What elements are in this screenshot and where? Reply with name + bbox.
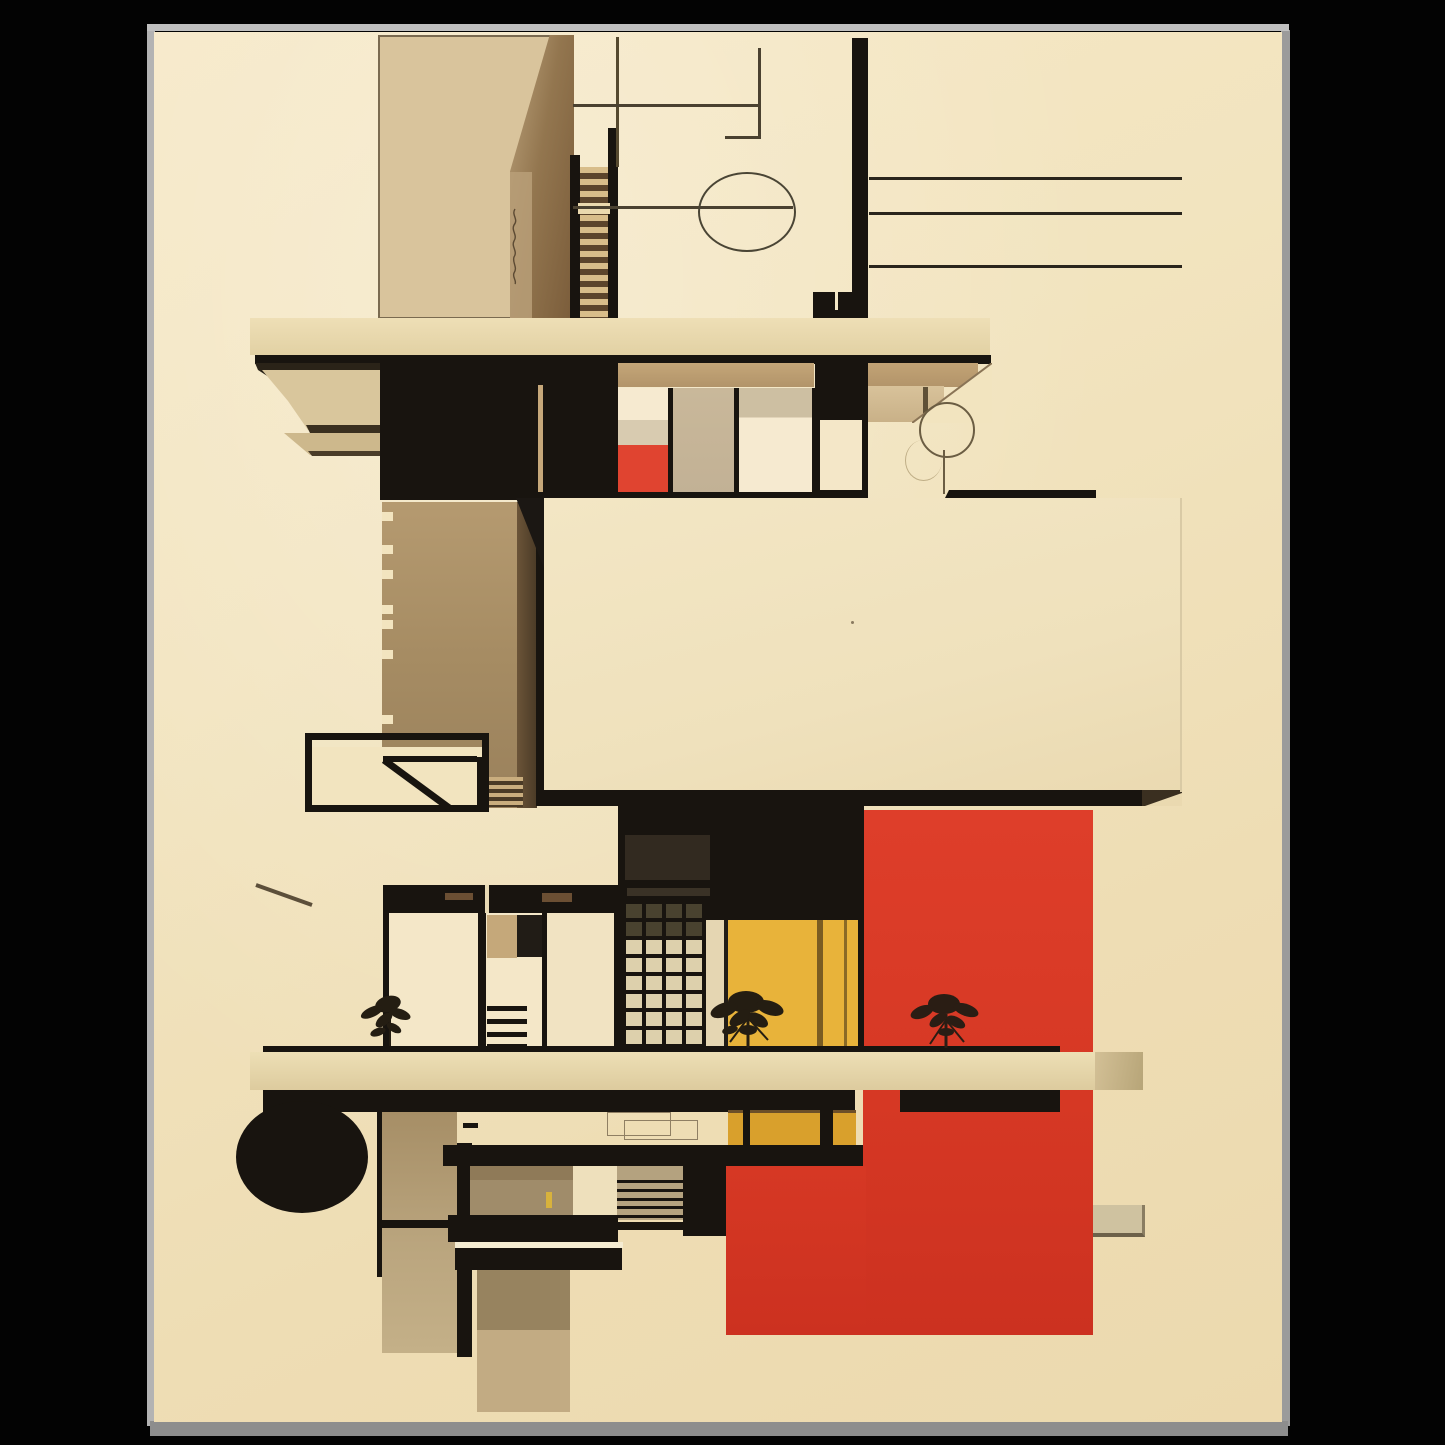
speck [851,621,854,624]
grid-cell [626,958,642,972]
window-pane-3 [739,388,812,494]
ellipse-ornament [698,172,796,252]
window-filler [812,388,816,494]
grid-cell [686,904,702,918]
poster-edge-top [147,24,1289,31]
grid-cell [646,904,662,918]
cantilever-slit [538,385,543,492]
circle-stem [943,450,945,494]
rule-line-2 [869,212,1182,215]
small-dash-2 [463,1123,478,1128]
corner-line-horizontal [725,136,761,139]
house-corner-shadow [516,498,544,568]
tower-notch [382,512,393,521]
plant-icon [902,988,988,1050]
red-panel-extension [726,1166,866,1335]
tower-notch [382,650,393,659]
grid-cell [626,1030,642,1044]
wall-mullion-right [614,885,626,1052]
louver-window-top [617,1166,683,1178]
header-dash-2 [542,893,572,902]
grid-cell [686,958,702,972]
house-body [536,498,1182,806]
poster-artwork [154,32,1282,1422]
lower-band-upper [443,1145,863,1166]
plant-icon [350,990,412,1048]
grid-cell [646,1012,662,1026]
window-header-band [618,363,814,387]
grid-cell [646,940,662,954]
room-cream-pane [573,1166,617,1217]
tower-notch [382,570,393,579]
big-black-ellipse [236,1101,368,1213]
grid-cell [666,940,682,954]
grid-cell [666,976,682,990]
grid-cell [646,1030,662,1044]
right-tab-block [1093,1205,1145,1237]
grid-cell [626,994,642,1008]
pane2-louver [487,1019,527,1024]
faint-arc [905,440,942,481]
pane2-louver [487,1032,527,1037]
upper-slab [250,318,990,355]
window-pane-2 [673,388,734,494]
grid-cell [666,904,682,918]
room-taupe-pane [470,1180,573,1217]
yellow-lower-mullion-1 [743,1110,750,1147]
grid-cell [646,994,662,1008]
stair-treads [580,167,608,318]
signature-squiggle [509,207,521,285]
bar-window-pane [820,420,862,490]
stair-rail-left [570,155,580,318]
thick-vertical-bar [852,38,868,312]
room-door-light [546,1192,552,1208]
louver-line [617,1189,683,1192]
grid-cell [646,976,662,990]
grid-cell [626,904,642,918]
grid-cell [626,922,642,936]
grid-cell [666,994,682,1008]
louver-window [617,1178,683,1220]
cantilever-block [380,358,618,500]
mid-dark-strip [627,888,710,896]
rule-line-1 [869,177,1182,180]
vertical-line-ornament [616,37,619,167]
walkway-slab [250,1052,1143,1090]
grid-cell [646,958,662,972]
grid-cell [646,922,662,936]
red-window-square [618,445,668,494]
lower-band-ext-right [618,1222,726,1230]
grid-cell [626,976,642,990]
header-dash-1 [445,893,473,900]
grid-window [622,900,706,1048]
underslab-band-right [900,1090,1060,1112]
wall-mullion-2 [478,913,486,1046]
mid-dark-panel [625,835,710,880]
tower-notch [382,715,393,724]
lower-room-taupe [477,1270,570,1330]
lower-band-ext-left [378,1220,448,1228]
grid-cell [666,1012,682,1026]
sketch-rect-2 [624,1120,698,1140]
left-chevron-wedge [250,357,382,467]
wall-pane-3 [547,913,614,1046]
lower-room-tan [477,1330,570,1412]
corner-line-vertical [758,48,761,139]
grid-cell [626,1012,642,1026]
grid-cell [666,922,682,936]
louver-line [617,1198,683,1201]
walkway-slab-end [1095,1052,1143,1090]
tower-notch [382,545,393,554]
pane2-black-inset [517,915,542,957]
grid-cell [686,922,702,936]
window-wall-header [383,885,618,913]
balcony-inner-post [477,757,483,812]
house-bottom-wedge [1142,790,1182,806]
louver-line [617,1180,683,1183]
underslab-band-left [263,1090,855,1112]
tower-notch [382,605,393,614]
product-photo-background [0,0,1445,1445]
grid-cell [626,940,642,954]
small-dash-1 [463,1103,477,1108]
grid-cell [686,940,702,954]
poster-edge-right [1281,30,1290,1426]
horizontal-line-ornament [573,104,761,107]
poster-edge-bottom [150,1421,1288,1436]
room-tan-strip [470,1166,573,1180]
pane2-tan-inset [487,915,517,958]
house-right-edge [1180,498,1182,792]
balcony-diagonal [380,758,454,812]
lower-band-bottom [455,1248,622,1270]
lower-band-thick [448,1215,618,1242]
louver-line [617,1206,683,1209]
tower-notch [382,620,393,629]
pane2-louver [487,1006,527,1011]
yellow-lower-mullion-2 [820,1110,833,1147]
grid-cell [666,1030,682,1044]
grid-cell [666,958,682,972]
slab-shadow-diagonal [254,883,314,907]
plant-icon [700,984,796,1050]
rule-line-3 [869,265,1182,268]
louver-line [617,1215,683,1218]
